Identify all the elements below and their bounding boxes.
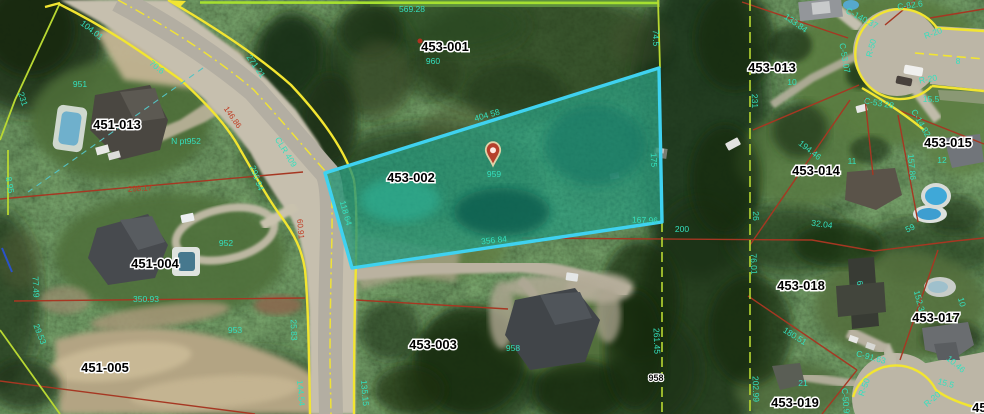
svg-text:N pt952: N pt952 xyxy=(171,136,201,146)
svg-text:261.45: 261.45 xyxy=(652,328,663,355)
svg-text:951: 951 xyxy=(73,79,87,89)
svg-text:231: 231 xyxy=(750,94,760,109)
svg-text:453-014: 453-014 xyxy=(792,163,840,178)
svg-text:453-002: 453-002 xyxy=(387,170,435,185)
svg-text:960: 960 xyxy=(426,56,440,66)
svg-text:453-003: 453-003 xyxy=(409,337,457,352)
svg-text:21: 21 xyxy=(798,378,808,388)
svg-text:453-017: 453-017 xyxy=(912,310,960,325)
svg-text:74.5: 74.5 xyxy=(651,30,662,47)
svg-text:202.99: 202.99 xyxy=(751,376,762,403)
svg-text:453-016: 453-016 xyxy=(972,400,984,414)
svg-text:453-019: 453-019 xyxy=(771,395,819,410)
svg-text:298.17: 298.17 xyxy=(128,183,154,194)
svg-text:952: 952 xyxy=(219,238,233,248)
svg-text:453-018: 453-018 xyxy=(777,278,825,293)
svg-text:958: 958 xyxy=(648,373,663,383)
svg-text:175: 175 xyxy=(649,153,659,168)
svg-text:453-001: 453-001 xyxy=(421,39,469,54)
svg-text:8: 8 xyxy=(956,56,961,66)
svg-text:569.28: 569.28 xyxy=(399,4,425,14)
svg-text:25.83: 25.83 xyxy=(289,319,300,341)
svg-text:451-005: 451-005 xyxy=(81,360,129,375)
svg-text:167.96: 167.96 xyxy=(632,215,659,226)
svg-text:60.91: 60.91 xyxy=(295,219,306,240)
svg-text:15.5: 15.5 xyxy=(923,94,940,104)
svg-text:959: 959 xyxy=(487,169,501,179)
svg-text:451-004: 451-004 xyxy=(131,256,179,271)
svg-text:453-015: 453-015 xyxy=(924,135,972,150)
svg-text:953: 953 xyxy=(228,325,242,335)
svg-text:453-013: 453-013 xyxy=(748,60,796,75)
svg-text:10: 10 xyxy=(787,77,797,87)
svg-text:11: 11 xyxy=(848,156,857,166)
svg-text:12: 12 xyxy=(937,155,947,165)
svg-text:350.93: 350.93 xyxy=(133,294,159,304)
svg-text:77.49: 77.49 xyxy=(30,276,41,298)
svg-text:200: 200 xyxy=(675,224,689,234)
svg-text:958: 958 xyxy=(506,343,520,353)
svg-text:26: 26 xyxy=(751,211,761,221)
svg-text:451-013: 451-013 xyxy=(93,117,141,132)
svg-text:76.01: 76.01 xyxy=(749,253,760,275)
